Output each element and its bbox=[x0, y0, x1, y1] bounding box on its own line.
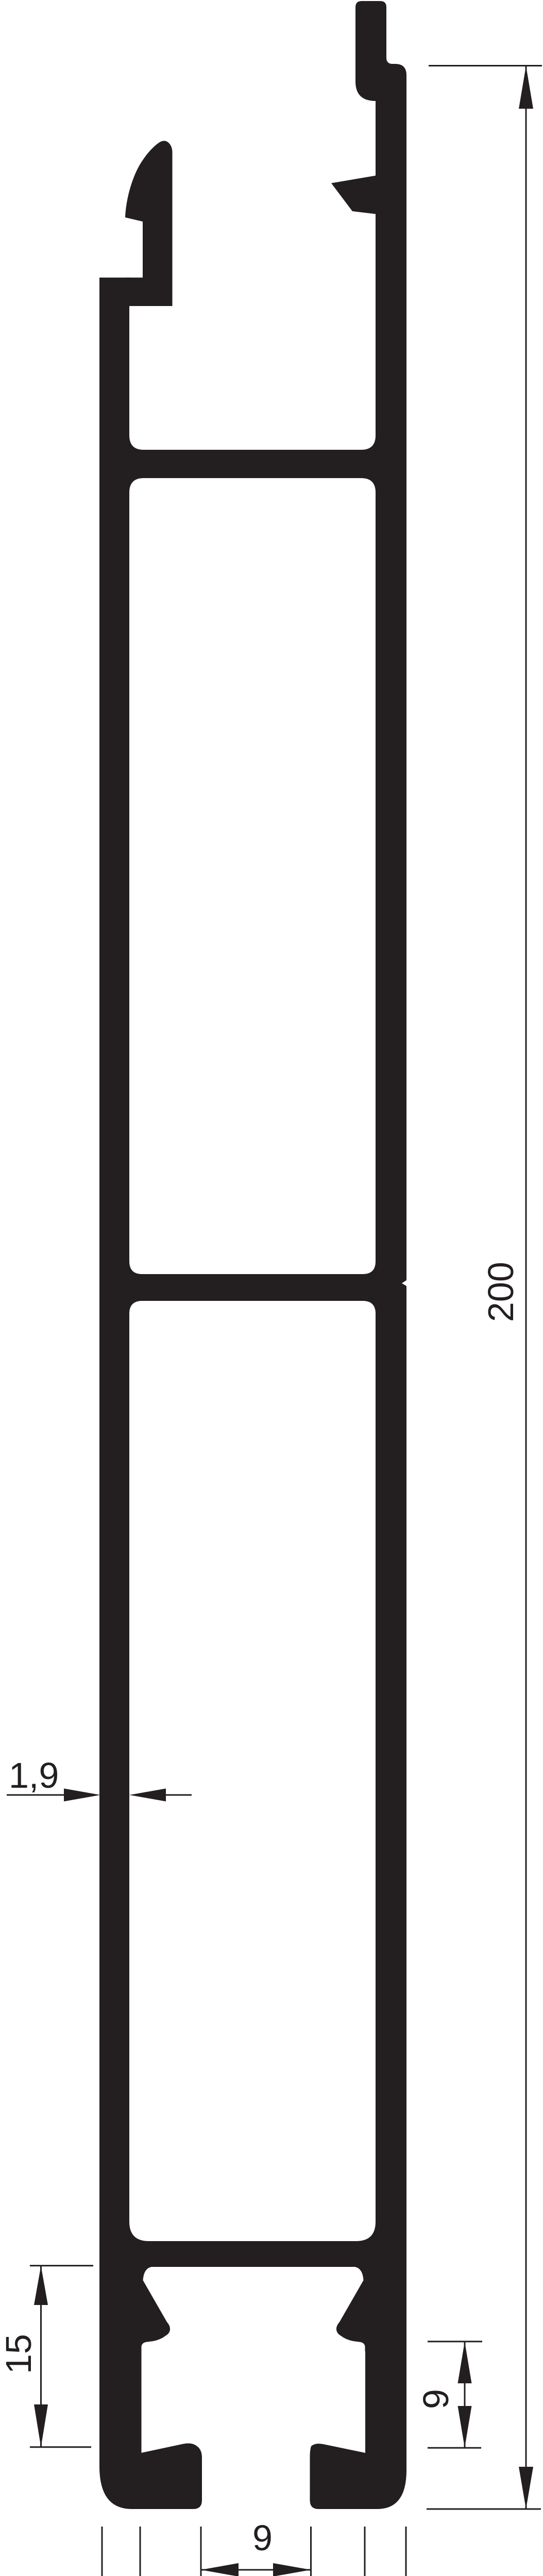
svg-text:9: 9 bbox=[252, 2518, 273, 2558]
svg-text:15: 15 bbox=[0, 2334, 39, 2374]
svg-text:200: 200 bbox=[481, 1262, 521, 1322]
svg-text:1,9: 1,9 bbox=[9, 1755, 59, 1795]
svg-text:9: 9 bbox=[416, 2389, 456, 2409]
